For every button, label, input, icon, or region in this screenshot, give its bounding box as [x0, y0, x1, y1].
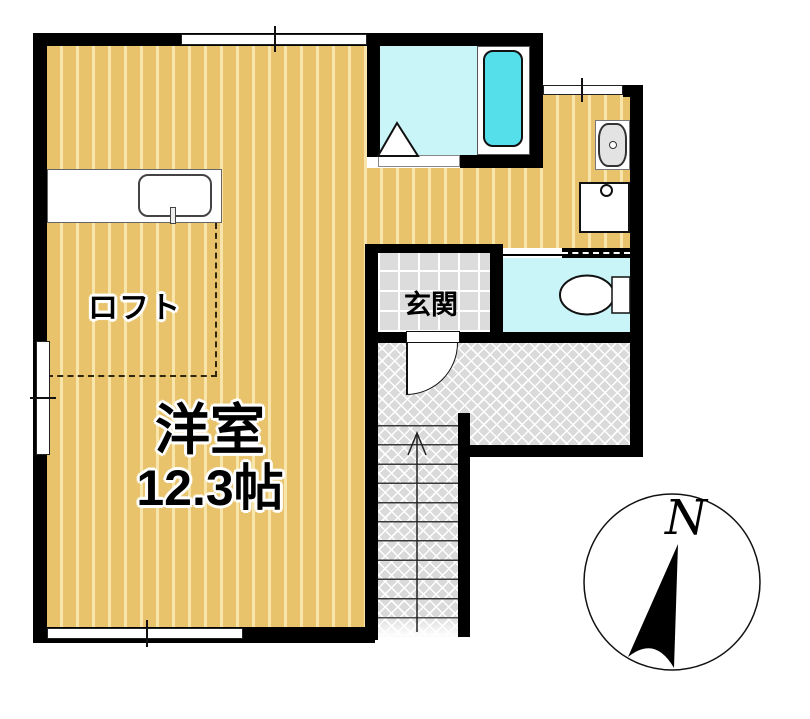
- front-door-opening: [406, 331, 460, 343]
- wall-bathroom-left: [367, 33, 380, 157]
- toilet-sliding-door: [503, 248, 562, 256]
- wall-toilet-top: [562, 248, 630, 258]
- loft-boundary-vertical: [215, 223, 217, 377]
- wall-right: [630, 85, 643, 457]
- wall-left: [33, 33, 47, 643]
- toilet-door-dash: [562, 252, 630, 254]
- wall-toilet-left: [490, 248, 503, 343]
- window-tick-corridor: [581, 78, 583, 102]
- window-corridor: [543, 85, 623, 95]
- wall-bathroom-bottom: [460, 155, 543, 168]
- loft-boundary-horizontal: [47, 375, 217, 377]
- main-room-label: 洋室 12.3帖: [85, 400, 335, 516]
- toilet-floor: [503, 258, 630, 332]
- window-tick-top: [274, 26, 276, 52]
- loft-label: ロフト: [88, 283, 181, 327]
- compass-circle: [584, 494, 760, 670]
- window-tick-bottom: [146, 620, 148, 647]
- wall-stairwell-right: [458, 413, 470, 637]
- compass-north-label: N: [664, 490, 709, 546]
- stairs: [376, 425, 458, 637]
- floorplan: N ロフト 洋室 12.3帖 玄関: [0, 0, 810, 719]
- kitchen-faucet: [170, 207, 176, 224]
- main-room-floor: [47, 46, 367, 627]
- window-bottom: [47, 628, 243, 639]
- compass-needle: [628, 544, 678, 668]
- bathtub: [483, 50, 523, 147]
- washing-machine-tap: [600, 184, 613, 197]
- wall-entry-hall-bottom: [468, 445, 643, 457]
- window-tick-left: [30, 397, 56, 399]
- washbasin-drain: [609, 141, 617, 149]
- wall-bathroom-right: [530, 33, 543, 168]
- entrance-label: 玄関: [404, 283, 458, 322]
- main-room-name: 洋室: [85, 400, 335, 461]
- wall-topright-corner: [623, 85, 643, 97]
- wall-entrance-top: [365, 244, 503, 253]
- main-room-area: 12.3帖: [85, 461, 335, 516]
- bathroom-door-threshold: [378, 155, 460, 167]
- wall-main-room-right: [365, 244, 378, 640]
